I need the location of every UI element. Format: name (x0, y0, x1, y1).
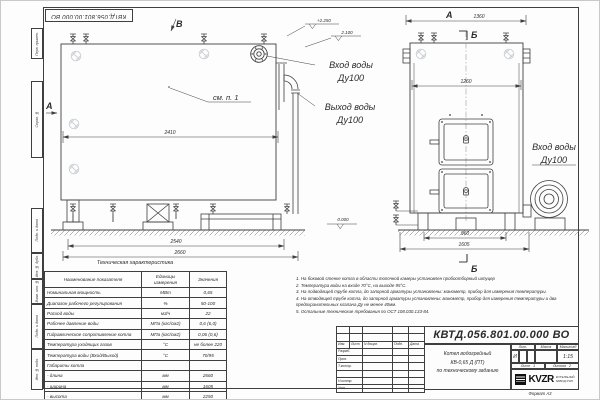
table-row: Температура уходящих газов°Сне более 220 (45, 339, 227, 349)
handhole-icon (71, 51, 81, 61)
mass-value (535, 350, 557, 363)
dim-960: 960 (461, 231, 470, 237)
boiler-body-side (61, 44, 276, 200)
section-label-b-bottom: Б (471, 264, 478, 274)
tech-col-values: Значения (190, 272, 227, 288)
sign-row: Разраб. (337, 348, 425, 355)
label-water-inlet-right-dn: Ду100 (540, 155, 567, 165)
label-water-inlet: Вход воды (329, 60, 373, 70)
margin-label: Справ. № (35, 111, 39, 127)
tech-table-header: Наименование показателя Единицы измерени… (45, 272, 227, 288)
label-water-outlet-dn: Ду100 (336, 115, 363, 125)
boiler-drawing: 2410 2540 2660 В А см. п. 1 +2.250 2.100… (43, 7, 593, 275)
margin-label: Инв. № дубл. (35, 255, 39, 277)
sign-row: Утв. (337, 385, 425, 392)
valve-icon (173, 204, 179, 214)
note-item: 5. Остальные технические требования по О… (296, 309, 570, 316)
view-arrow-v: В (176, 19, 183, 29)
document-title: Котел водогрейный КВ-0,65 Д (ПТ) по техн… (424, 344, 511, 390)
sign-row: Н.контр. (337, 378, 425, 385)
margin-box-inv-podl: Инв. № подл. (31, 349, 43, 390)
company-logo-area: KVZR КОТЕЛЬНЫЙ ЗАВОД РЭП (511, 369, 579, 390)
sign-header-row: Изм. Лист N докум. Подп. Дата (337, 341, 425, 348)
margin-box-sprav-no: Справ. № (31, 81, 43, 158)
right-view: А 1360 1260 960 1605 Б Б Вход воды Ду100 (393, 10, 589, 274)
lit-cell-2 (519, 350, 527, 363)
doc-title-line3: по техническому заданию (425, 367, 510, 376)
dim-2660: 2660 (173, 250, 185, 256)
doc-title-line2: КВ-0,65 Д (ПТ) (425, 359, 510, 368)
margin-label: Перв. примен. (35, 32, 39, 56)
ground-hatch (398, 231, 589, 236)
doc-title-line1: Котел водогрейный (425, 350, 510, 359)
section-label-b-top: Б (471, 30, 478, 40)
valve-icon (393, 215, 399, 225)
tech-table: Наименование показателя Единицы измерени… (44, 271, 227, 400)
format-label: Формат А3 (501, 391, 579, 396)
dim-2540: 2540 (169, 239, 181, 245)
elev-2250: +2.250 (317, 18, 331, 23)
tech-table-title: Техническая характеристика (44, 260, 226, 266)
margin-box-inv-dubl: Инв. № дубл. (31, 253, 43, 279)
handhole-icon (504, 49, 514, 59)
valve-icon (284, 204, 290, 214)
valve-icon (70, 34, 76, 44)
table-row: Габариты котла (45, 360, 227, 370)
handhole-icon (416, 49, 426, 59)
note-item: 3. На подводящей трубе котла, до запорно… (296, 289, 570, 296)
handhole-icon (199, 49, 209, 59)
technical-notes: 1. На боковой стенке котла в области топ… (296, 276, 570, 316)
note-item: 2. Температура воды на входе 70°С, на вы… (296, 283, 570, 290)
tech-col-name: Наименование показателя (45, 272, 142, 288)
note-item: 4. На отводящей трубе котла, до запорной… (296, 296, 570, 309)
company-name: КОТЕЛЬНЫЙ ЗАВОД РЭП (556, 376, 575, 384)
dim-1605: 1605 (458, 242, 469, 248)
valve-icon (110, 204, 116, 214)
valve-icon (83, 34, 89, 44)
margin-box-podp-data2: Подп. и дата (31, 304, 43, 349)
dim-1260: 1260 (460, 79, 471, 85)
tech-col-units: Единицы измерения (142, 272, 190, 288)
valve-icon (503, 33, 509, 43)
elev-0000: 0.000 (337, 217, 349, 222)
sign-row (337, 370, 425, 377)
label-water-inlet-right: Вход воды (532, 142, 576, 152)
kvzr-logo-icon (515, 374, 526, 385)
margin-box-perv-primen: Перв. примен. (31, 28, 43, 59)
view-label-a: А (445, 10, 453, 20)
inlet-flange-icon (251, 46, 268, 63)
table-row: Гидравлическое сопротивление котлаМПа (к… (45, 329, 227, 339)
note-item: 1. На боковой стенке котла в области топ… (296, 276, 570, 283)
valve-icon (431, 33, 437, 43)
table-row: Расход водым3/ч22 (45, 308, 227, 318)
furnace-door-upper (430, 114, 493, 165)
handhole-icon (69, 119, 79, 129)
handhole-icon (69, 164, 79, 174)
margin-label: Взам. инв. № (35, 280, 39, 302)
document-number: КВТД.056.801.00.000 ВО (424, 326, 579, 344)
margin-label: Подп. и дата (35, 315, 39, 338)
view-arrow-a: А (45, 101, 53, 111)
left-view: 2410 2540 2660 В А см. п. 1 +2.250 2.100… (45, 18, 376, 261)
scale-value: 1:15 (557, 350, 579, 363)
ground-hatch (51, 231, 305, 236)
signature-table: Изм. Лист N докум. Подп. Дата Разраб. Пр… (336, 326, 425, 393)
margin-box-vzam-inv: Взам. инв. № (31, 279, 43, 304)
valve-icon (261, 34, 267, 44)
table-row: - ширинамм1605 (45, 381, 227, 391)
table-row: - высотамм2250 (45, 391, 227, 400)
sign-row: Пров. (337, 356, 425, 363)
table-row: Температура воды (Вход/Выход)°С70/95 (45, 350, 227, 360)
callout-see-note: см. п. 1 (213, 93, 239, 102)
sign-row: Т.контр. (337, 363, 425, 370)
valve-icon (201, 34, 207, 44)
valve-icon (393, 201, 399, 211)
margin-label: Инв. № подл. (35, 358, 39, 380)
dim-2410: 2410 (163, 130, 175, 136)
dim-1360: 1360 (473, 14, 484, 20)
supports (63, 200, 281, 230)
base-frame (418, 213, 515, 230)
title-block: Изм. Лист N докум. Подп. Дата Разраб. Пр… (336, 326, 579, 390)
table-row: Номинальная мощностьМВт0,65 (45, 288, 227, 298)
furnace-door-lower (430, 169, 493, 213)
margin-label: Подп. и дата (35, 219, 39, 242)
label-water-outlet: Выход воды (325, 102, 376, 112)
lit-value: И (511, 350, 519, 363)
outlet-piping (276, 63, 300, 214)
drawing-sheet: Перв. примен. Справ. № Подп. и дата Инв.… (0, 0, 600, 400)
lit-cell-3 (527, 350, 535, 363)
table-row: Диапазон рабочего регулирования%50-100 (45, 298, 227, 308)
label-water-inlet-dn: Ду100 (337, 73, 364, 83)
fan-icon (523, 181, 568, 231)
section-mark-b-bottom (459, 254, 467, 262)
valve-icon (210, 204, 216, 214)
margin-box-podp-data1: Подп. и дата (31, 208, 43, 253)
kvzr-logo-text: KVZR (528, 374, 553, 385)
elev-2100: 2.100 (340, 30, 353, 35)
table-row: - длинамм2660 (45, 371, 227, 381)
valve-icon (418, 33, 424, 43)
valve-icon (70, 204, 76, 214)
table-row: Рабочее давление водыМПа (кгс/см2)0,6 (6… (45, 319, 227, 329)
